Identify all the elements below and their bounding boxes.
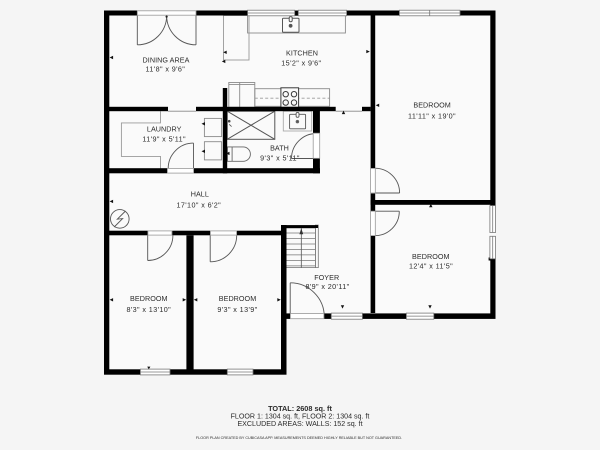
svg-text:DINING AREA: DINING AREA (143, 55, 190, 64)
svg-text:11'9" x 5'11": 11'9" x 5'11" (142, 134, 186, 143)
svg-text:FLOOR PLAN CREATED BY CUBICASA: FLOOR PLAN CREATED BY CUBICASA APP. MEAS… (196, 436, 402, 440)
svg-text:HALL: HALL (191, 189, 209, 198)
svg-text:EXCLUDED AREAS: WALLS: 152 sq.: EXCLUDED AREAS: WALLS: 152 sq. ft (237, 420, 362, 428)
svg-text:12'4" x 11'5": 12'4" x 11'5" (409, 261, 453, 270)
svg-text:11'11" x 19'0": 11'11" x 19'0" (408, 112, 456, 121)
svg-text:BEDROOM: BEDROOM (412, 252, 450, 261)
svg-text:BEDROOM: BEDROOM (219, 294, 257, 303)
svg-text:BEDROOM: BEDROOM (413, 101, 451, 110)
svg-text:15'2" x 9'6": 15'2" x 9'6" (281, 59, 321, 68)
svg-text:FOYER: FOYER (314, 273, 339, 282)
svg-text:LAUNDRY: LAUNDRY (147, 124, 182, 133)
svg-text:BEDROOM: BEDROOM (130, 294, 168, 303)
svg-text:BATH: BATH (270, 144, 289, 153)
svg-text:KITCHEN: KITCHEN (286, 48, 318, 57)
svg-text:8'3" x 13'10": 8'3" x 13'10" (126, 305, 171, 314)
svg-text:TOTAL: 2608 sq. ft: TOTAL: 2608 sq. ft (268, 404, 332, 413)
svg-text:8'9" x 20'11": 8'9" x 20'11" (305, 282, 349, 291)
svg-text:9'3" x 5'11": 9'3" x 5'11" (260, 154, 300, 163)
svg-text:11'8" x 9'6": 11'8" x 9'6" (146, 65, 186, 74)
svg-text:9'3" x 13'9": 9'3" x 13'9" (217, 305, 257, 314)
svg-text:17'10" x 6'2": 17'10" x 6'2" (176, 200, 221, 209)
